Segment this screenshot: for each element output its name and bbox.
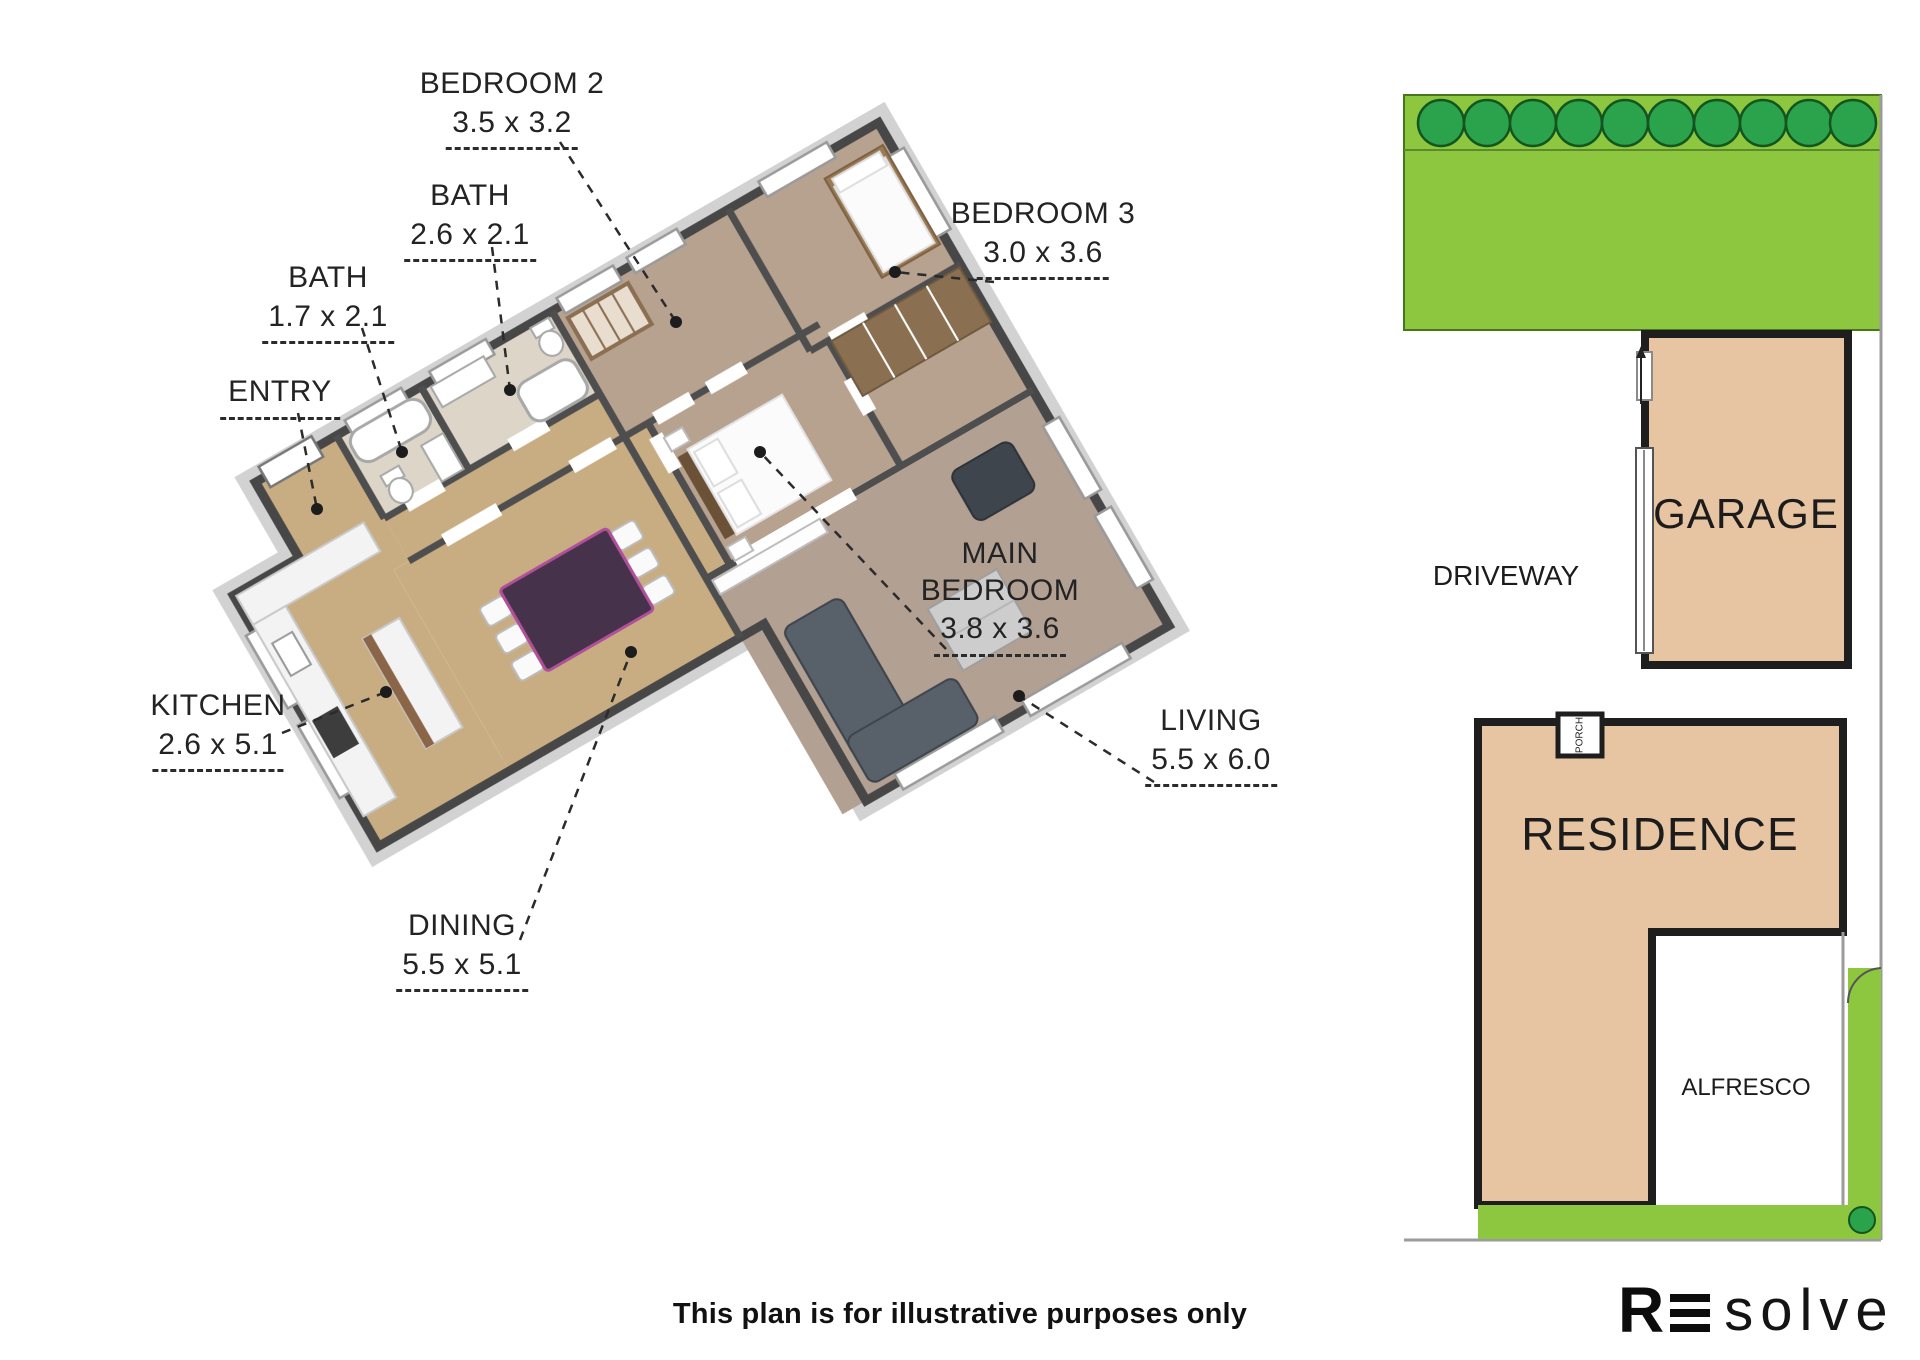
- room-dims: 2.6 x 5.1: [152, 725, 284, 773]
- porch-label: PORCH: [1575, 717, 1586, 753]
- driveway-label: DRIVEWAY: [1433, 560, 1579, 592]
- logo-word: solve: [1724, 1282, 1894, 1340]
- room-dims: 3.5 x 3.2: [446, 103, 578, 151]
- hedge-trees: [1418, 100, 1876, 146]
- gate-arc: [1848, 968, 1881, 1003]
- room-name: BEDROOM 2: [420, 66, 605, 103]
- site-boundary: [1404, 95, 1881, 1240]
- label-entry: ENTRY: [220, 372, 340, 420]
- garage-door-opening: [1636, 448, 1653, 653]
- room-dims: 5.5 x 5.1: [396, 945, 528, 993]
- label-kitchen: KITCHEN 2.6 x 5.1: [150, 688, 285, 772]
- room-name: LIVING: [1145, 703, 1277, 740]
- room-name: MAIN BEDROOM: [910, 536, 1090, 609]
- room-name: ENTRY: [220, 372, 340, 420]
- room-dims: 2.6 x 2.1: [404, 215, 536, 263]
- residence-label: RESIDENCE: [1521, 807, 1798, 861]
- tree-icon: [1694, 100, 1740, 146]
- page: BEDROOM 2 3.5 x 3.2 BATH 2.6 x 2.1 BATH …: [0, 0, 1920, 1360]
- resolve-logo: R solve: [1618, 1278, 1895, 1342]
- lawn-side: [1848, 968, 1881, 1208]
- tree-icon: [1849, 1207, 1875, 1233]
- room-dims: 1.7 x 2.1: [262, 297, 394, 345]
- garage-window: [1637, 352, 1652, 400]
- room-name: KITCHEN: [150, 688, 285, 725]
- room-name: BATH: [262, 260, 394, 297]
- label-main-bedroom: MAIN BEDROOM 3.8 x 3.6: [910, 536, 1090, 657]
- tree-icon: [1648, 100, 1694, 146]
- alfresco-label: ALFRESCO: [1681, 1074, 1810, 1102]
- room-dims: 3.0 x 3.6: [977, 233, 1109, 281]
- label-bath-26: BATH 2.6 x 2.1: [404, 178, 536, 262]
- label-bath-17: BATH 1.7 x 2.1: [262, 260, 394, 344]
- room-name: BEDROOM 3: [951, 196, 1136, 233]
- label-bedroom3: BEDROOM 3 3.0 x 3.6: [951, 196, 1136, 280]
- logo-r: R: [1618, 1278, 1664, 1342]
- tree-icon: [1602, 100, 1648, 146]
- tree-icon: [1830, 100, 1876, 146]
- entry-arrow-head: [1636, 346, 1646, 358]
- label-dining: DINING 5.5 x 5.1: [396, 908, 528, 992]
- room-dims: 3.8 x 3.6: [934, 609, 1066, 657]
- tree-icon: [1418, 100, 1464, 146]
- garage-label: GARAGE: [1653, 490, 1839, 538]
- label-bedroom2: BEDROOM 2 3.5 x 3.2: [420, 66, 605, 150]
- tree-icon: [1464, 100, 1510, 146]
- disclaimer-text: This plan is for illustrative purposes o…: [673, 1298, 1247, 1331]
- tree-icon: [1740, 100, 1786, 146]
- label-living: LIVING 5.5 x 6.0: [1145, 703, 1277, 787]
- tree-icon: [1556, 100, 1602, 146]
- residence: [1478, 722, 1843, 1205]
- lawn-top: [1404, 95, 1881, 330]
- tree-icon: [1786, 100, 1832, 146]
- tree-icon: [1510, 100, 1556, 146]
- room-name: DINING: [396, 908, 528, 945]
- room-dims: 5.5 x 6.0: [1145, 740, 1277, 788]
- logo-e-bars-icon: [1670, 1294, 1710, 1332]
- room-name: BATH: [404, 178, 536, 215]
- lawn-bottom: [1478, 1205, 1881, 1239]
